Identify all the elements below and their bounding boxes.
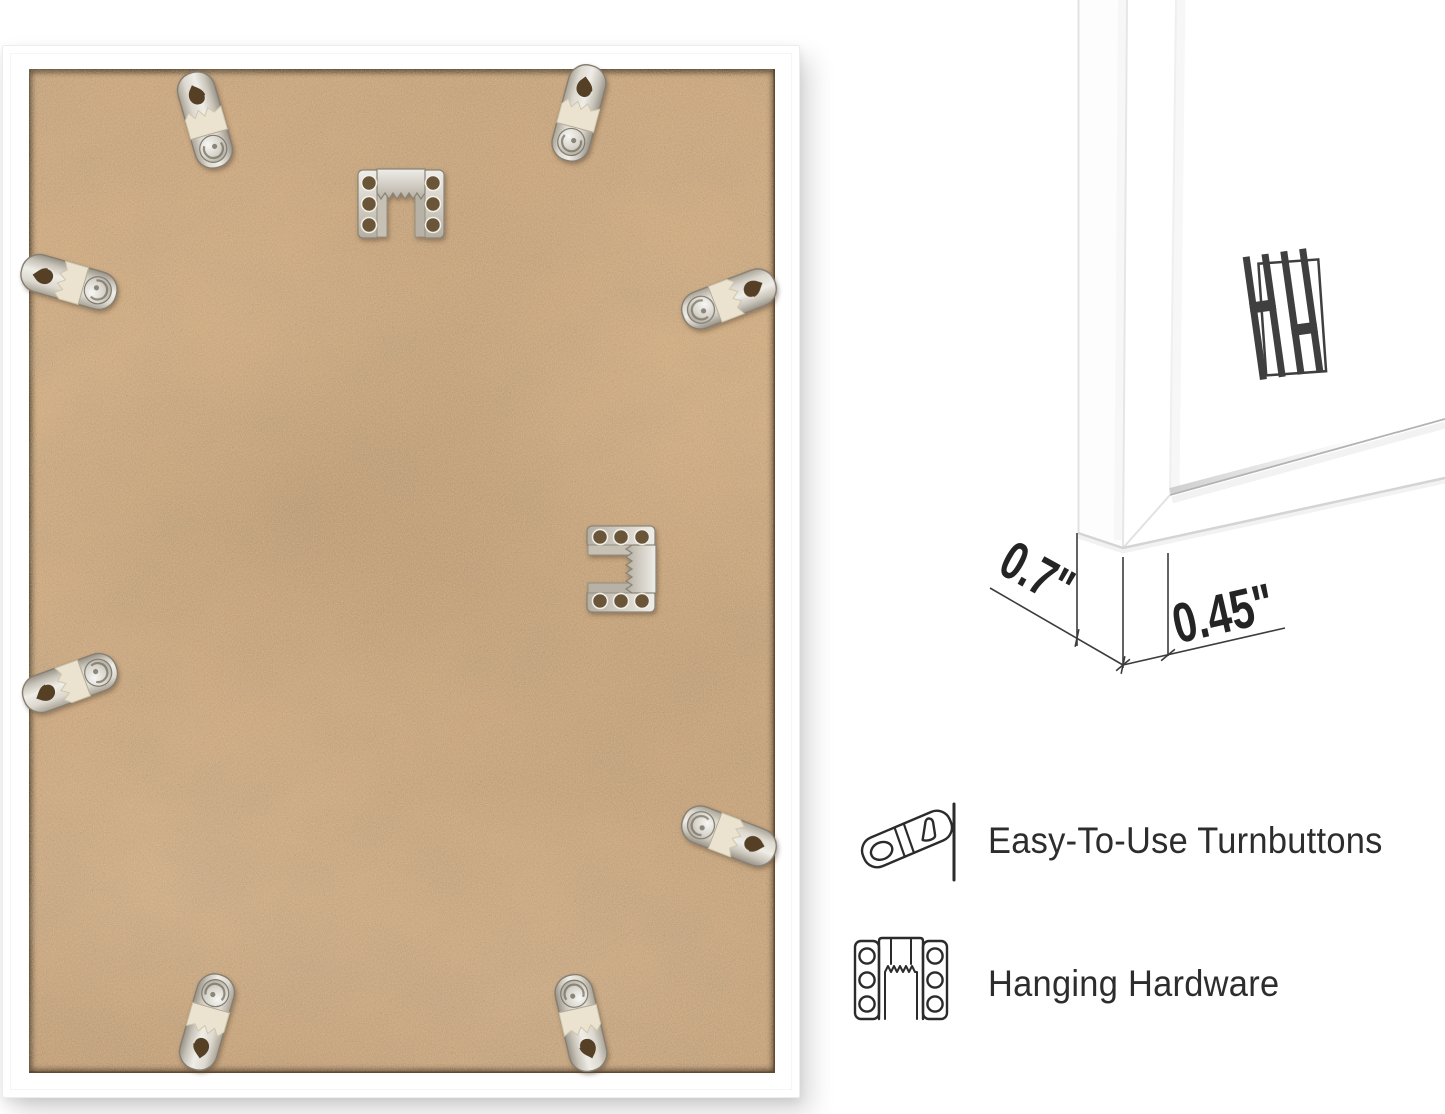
turnbutton xyxy=(676,264,781,335)
dimension-annotation: 0.7" 0.45" xyxy=(940,500,1445,714)
turnbutton xyxy=(551,971,610,1075)
sawtooth-hanger-icon xyxy=(853,935,949,1023)
feature-label-hanging-hardware: Hanging Hardware xyxy=(988,959,1279,1009)
dimension-label-depth: 0.7" xyxy=(990,530,1084,618)
turnbutton xyxy=(17,648,122,717)
sawtooth-hanger xyxy=(358,169,444,238)
turnbutton xyxy=(17,250,122,314)
frame-hardware xyxy=(3,46,799,1097)
dimension-label-width: 0.45" xyxy=(1166,571,1280,655)
turnbutton xyxy=(173,68,237,173)
sawtooth-hanger xyxy=(587,526,656,612)
feature-label-turnbuttons: Easy-To-Use Turnbuttons xyxy=(988,816,1383,866)
turnbutton xyxy=(548,61,610,165)
turnbutton xyxy=(175,970,239,1075)
frame-back-photo xyxy=(2,45,800,1098)
product-infographic: 0.7" 0.45" Easy-To-Use Turnbuttons Hangi… xyxy=(0,0,1445,1114)
turnbutton-icon xyxy=(850,798,962,886)
turnbutton xyxy=(676,801,781,872)
